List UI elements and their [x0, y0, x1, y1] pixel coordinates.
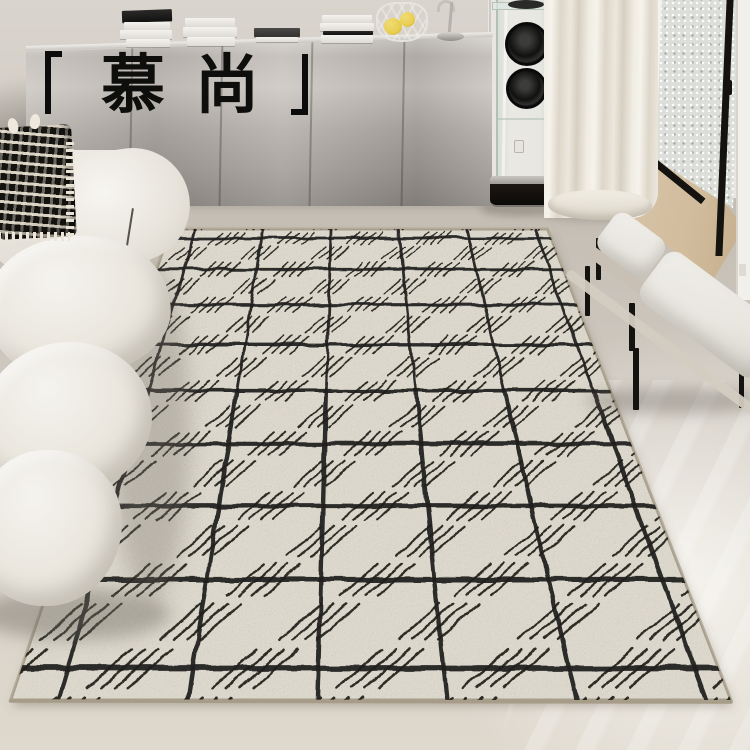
living-room-photo: 慕 尚 [0, 0, 750, 750]
pillow-fringe [66, 140, 74, 236]
pillow-fringe [0, 232, 70, 241]
bench-leg [633, 348, 639, 410]
